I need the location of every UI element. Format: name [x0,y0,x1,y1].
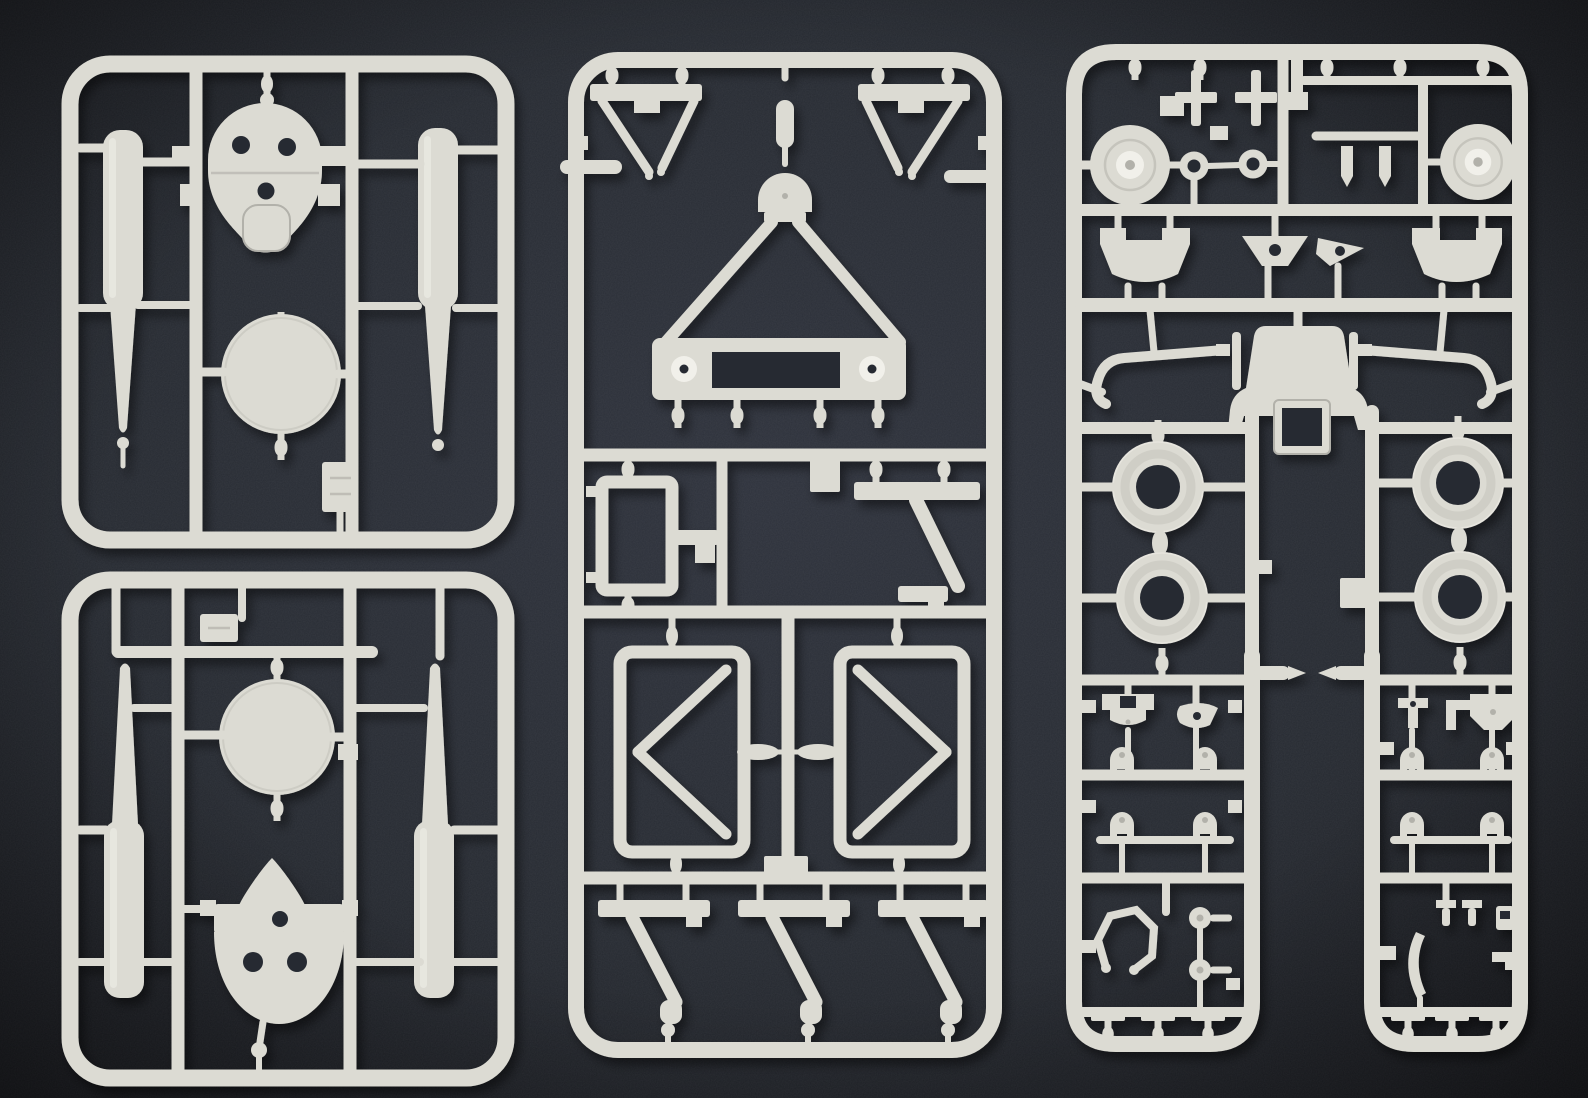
side-clip [1496,906,1514,930]
gate-block [338,744,358,760]
gate-block [320,146,350,166]
tag-plate [1340,578,1370,608]
gate-block [1082,800,1096,813]
step-block [695,545,715,563]
tag-plate [810,458,840,492]
gate-block [1082,940,1096,953]
gate-block [180,184,202,206]
pin-stick [1232,332,1241,390]
side-arm [668,530,722,545]
gate-block [1160,96,1184,116]
tag-plate-lower [764,856,808,874]
photo-of-model-kit-sprues [0,0,1588,1098]
gate-block [1256,560,1272,574]
sprue-photo-canvas [0,0,1588,1098]
gate-block [1082,700,1096,713]
wheel-hub-left [1090,125,1170,205]
small-ring-2 [1239,150,1268,179]
gate-block [1506,742,1520,755]
gate-block [1226,978,1240,990]
wheel-hub-right [1440,124,1516,200]
gate-block [1380,946,1396,960]
gate-block [1380,742,1394,755]
gate-block [1210,126,1228,140]
gate-block [1228,800,1242,813]
gate-block [1228,700,1242,713]
small-ring-1 [1180,152,1209,181]
gate-block [318,184,340,206]
